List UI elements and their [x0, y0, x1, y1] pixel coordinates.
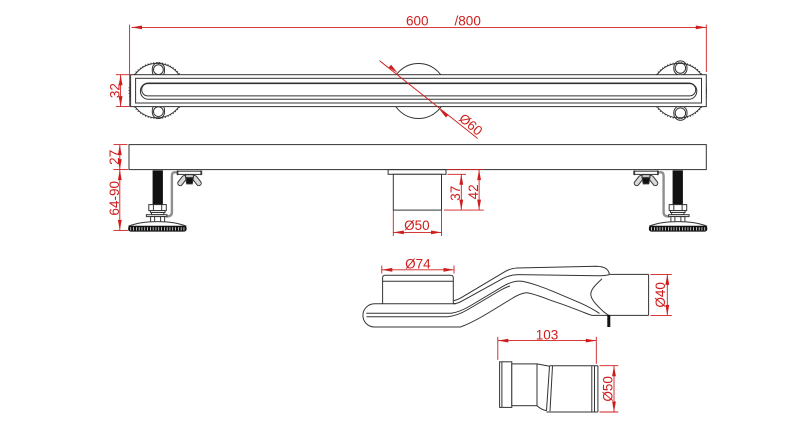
svg-text:64-90: 64-90: [107, 181, 122, 216]
svg-text:27: 27: [107, 150, 122, 165]
svg-text:42: 42: [466, 184, 481, 199]
svg-text:Ø50: Ø50: [601, 376, 616, 402]
svg-text:32: 32: [107, 83, 122, 98]
svg-text:37: 37: [448, 186, 463, 201]
svg-text:/800: /800: [455, 14, 481, 29]
svg-text:Ø40: Ø40: [653, 282, 668, 308]
svg-text:103: 103: [536, 327, 559, 342]
svg-text:Ø50: Ø50: [404, 218, 430, 233]
svg-text:600: 600: [406, 14, 429, 29]
svg-text:Ø74: Ø74: [405, 257, 431, 272]
